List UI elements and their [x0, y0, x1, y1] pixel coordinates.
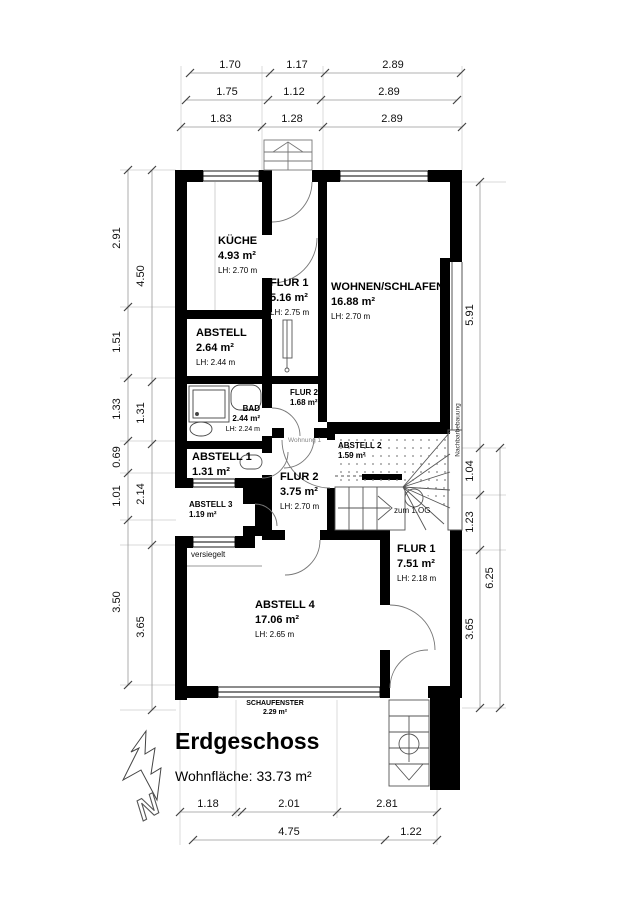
room-label-abstell: ABSTELL 2.64 m² LH: 2.44 m: [196, 326, 247, 369]
room-label-wohnen-schlafen: WOHNEN/SCHLAFEN 16.88 m² LH: 2.70 m: [331, 280, 444, 323]
room-area: 2.64 m²: [196, 341, 247, 356]
annotation-wohnung1: Wohnung 1: [288, 437, 321, 444]
annotation-nachbarbebauung: Nachbarbebauung: [455, 403, 462, 457]
room-label-abstell4: ABSTELL 4 17.06 m² LH: 2.65 m: [255, 598, 315, 641]
room-area: 1.31 m²: [192, 465, 252, 480]
dim-left-inner-2: 1.31: [135, 402, 147, 423]
dim-top-row2-seg2: 1.12: [283, 86, 304, 98]
dim-top-row3-seg2: 1.28: [281, 113, 302, 125]
dim-right-inner-3: 1.23: [464, 511, 476, 532]
north-letter: N: [131, 788, 167, 828]
room-height: LH: 2.75 m: [270, 307, 309, 319]
room-name: SCHAUFENSTER: [246, 699, 304, 708]
dim-left-outer-5: 1.01: [111, 485, 123, 506]
north-arrow: N: [123, 731, 166, 827]
dim-top-row1-seg1: 1.70: [219, 59, 240, 71]
toilet-icon: [190, 422, 212, 436]
room-name: WOHNEN/SCHLAFEN: [331, 280, 444, 295]
dim-left-outer-3: 1.33: [111, 398, 123, 419]
room-label-bad: BAD 2.44 m² LH: 2.24 m: [214, 404, 260, 435]
room-height: LH: 2.70 m: [280, 501, 319, 513]
room-name: ABSTELL 2: [338, 441, 381, 451]
room-name: FLUR 2: [280, 470, 319, 485]
room-name: BAD: [214, 404, 260, 414]
floorplan-drawing: N: [0, 0, 622, 900]
room-name: FLUR 1: [397, 542, 436, 557]
dim-top-row3-seg1: 1.83: [210, 113, 231, 125]
dim-bottom-row1-seg2: 2.01: [278, 798, 299, 810]
room-area: 2.44 m²: [214, 414, 260, 424]
room-area: 1.59 m²: [338, 451, 381, 461]
room-label-abstell3: ABSTELL 3 1.19 m²: [189, 500, 232, 521]
room-name: ABSTELL 4: [255, 598, 315, 613]
dim-top-row2-seg3: 2.89: [378, 86, 399, 98]
dim-top-row3-seg3: 2.89: [381, 113, 402, 125]
living-area-total: Wohnfläche: 33.73 m²: [175, 768, 312, 784]
room-area: 7.51 m²: [397, 557, 436, 572]
dim-top-row1-seg2: 1.17: [286, 59, 307, 71]
dim-left-outer-1: 2.91: [111, 227, 123, 248]
dim-left-outer-6: 3.50: [111, 591, 123, 612]
annotation-zum-og: zum 1.OG: [394, 506, 430, 515]
room-area: 1.19 m²: [189, 510, 232, 520]
dim-right-inner-4: 3.65: [464, 618, 476, 639]
room-height: LH: 2.70 m: [331, 311, 444, 323]
room-area: 16.88 m²: [331, 295, 444, 310]
dim-top-row1-seg3: 2.89: [382, 59, 403, 71]
room-label-abstell2: ABSTELL 2 1.59 m²: [338, 441, 381, 462]
entry-porch: [264, 140, 312, 170]
room-height: LH: 2.44 m: [196, 357, 247, 369]
dim-left-outer-4: 0.69: [111, 446, 123, 467]
room-area: 2.29 m²: [246, 708, 304, 717]
dim-right-outer-1: 6.25: [484, 567, 496, 588]
room-height: LH: 2.24 m: [214, 425, 260, 436]
dim-left-inner-1: 4.50: [135, 265, 147, 286]
room-label-flur2-klein: FLUR 2 1.68 m²: [290, 388, 318, 409]
room-name: FLUR 2: [290, 388, 318, 398]
dim-bottom-row1-seg3: 2.81: [376, 798, 397, 810]
room-name: ABSTELL 1: [192, 450, 252, 465]
room-label-abstell1: ABSTELL 1 1.31 m²: [192, 450, 252, 481]
neighbour-boundary: [448, 262, 462, 530]
dim-left-inner-3: 2.14: [135, 483, 147, 504]
room-label-schaufenster: SCHAUFENSTER 2.29 m²: [246, 699, 304, 717]
dim-left-inner-4: 3.65: [135, 616, 147, 637]
room-name: KÜCHE: [218, 234, 257, 249]
room-label-flur1-oben: FLUR 1 5.16 m² LH: 2.75 m: [270, 276, 309, 319]
room-name: ABSTELL 3: [189, 500, 232, 510]
dim-right-inner-2: 1.04: [464, 460, 476, 481]
room-height: LH: 2.18 m: [397, 573, 436, 585]
dim-bottom-row1-seg1: 1.18: [197, 798, 218, 810]
room-name: FLUR 1: [270, 276, 309, 291]
room-height: LH: 2.65 m: [255, 629, 315, 641]
dim-left-outer-2: 1.51: [111, 331, 123, 352]
radiator-icon: [283, 320, 292, 358]
dim-bottom-row2-seg2: 1.22: [400, 826, 421, 838]
floorplan-page: N KÜCHE 4.93 m² LH: 2.70 m FLUR 1 5.16 m…: [0, 0, 622, 900]
annotation-versiegelt: versiegelt: [191, 550, 225, 559]
room-label-flur2-gross: FLUR 2 3.75 m² LH: 2.70 m: [280, 470, 319, 513]
room-area: 3.75 m²: [280, 485, 319, 500]
exterior-stair-bottom: [389, 700, 429, 786]
room-area: 4.93 m²: [218, 249, 257, 264]
room-label-flur1-unten: FLUR 1 7.51 m² LH: 2.18 m: [397, 542, 436, 585]
room-area: 1.68 m²: [290, 398, 318, 408]
dim-top-row2-seg1: 1.75: [216, 86, 237, 98]
room-height: LH: 2.70 m: [218, 265, 257, 277]
room-label-kueche: KÜCHE 4.93 m² LH: 2.70 m: [218, 234, 257, 277]
room-area: 17.06 m²: [255, 613, 315, 628]
room-name: ABSTELL: [196, 326, 247, 341]
floor-title: Erdgeschoss: [175, 728, 319, 755]
dim-right-inner-1: 5.91: [464, 304, 476, 325]
dim-bottom-row2-seg1: 4.75: [278, 826, 299, 838]
room-area: 5.16 m²: [270, 291, 309, 306]
